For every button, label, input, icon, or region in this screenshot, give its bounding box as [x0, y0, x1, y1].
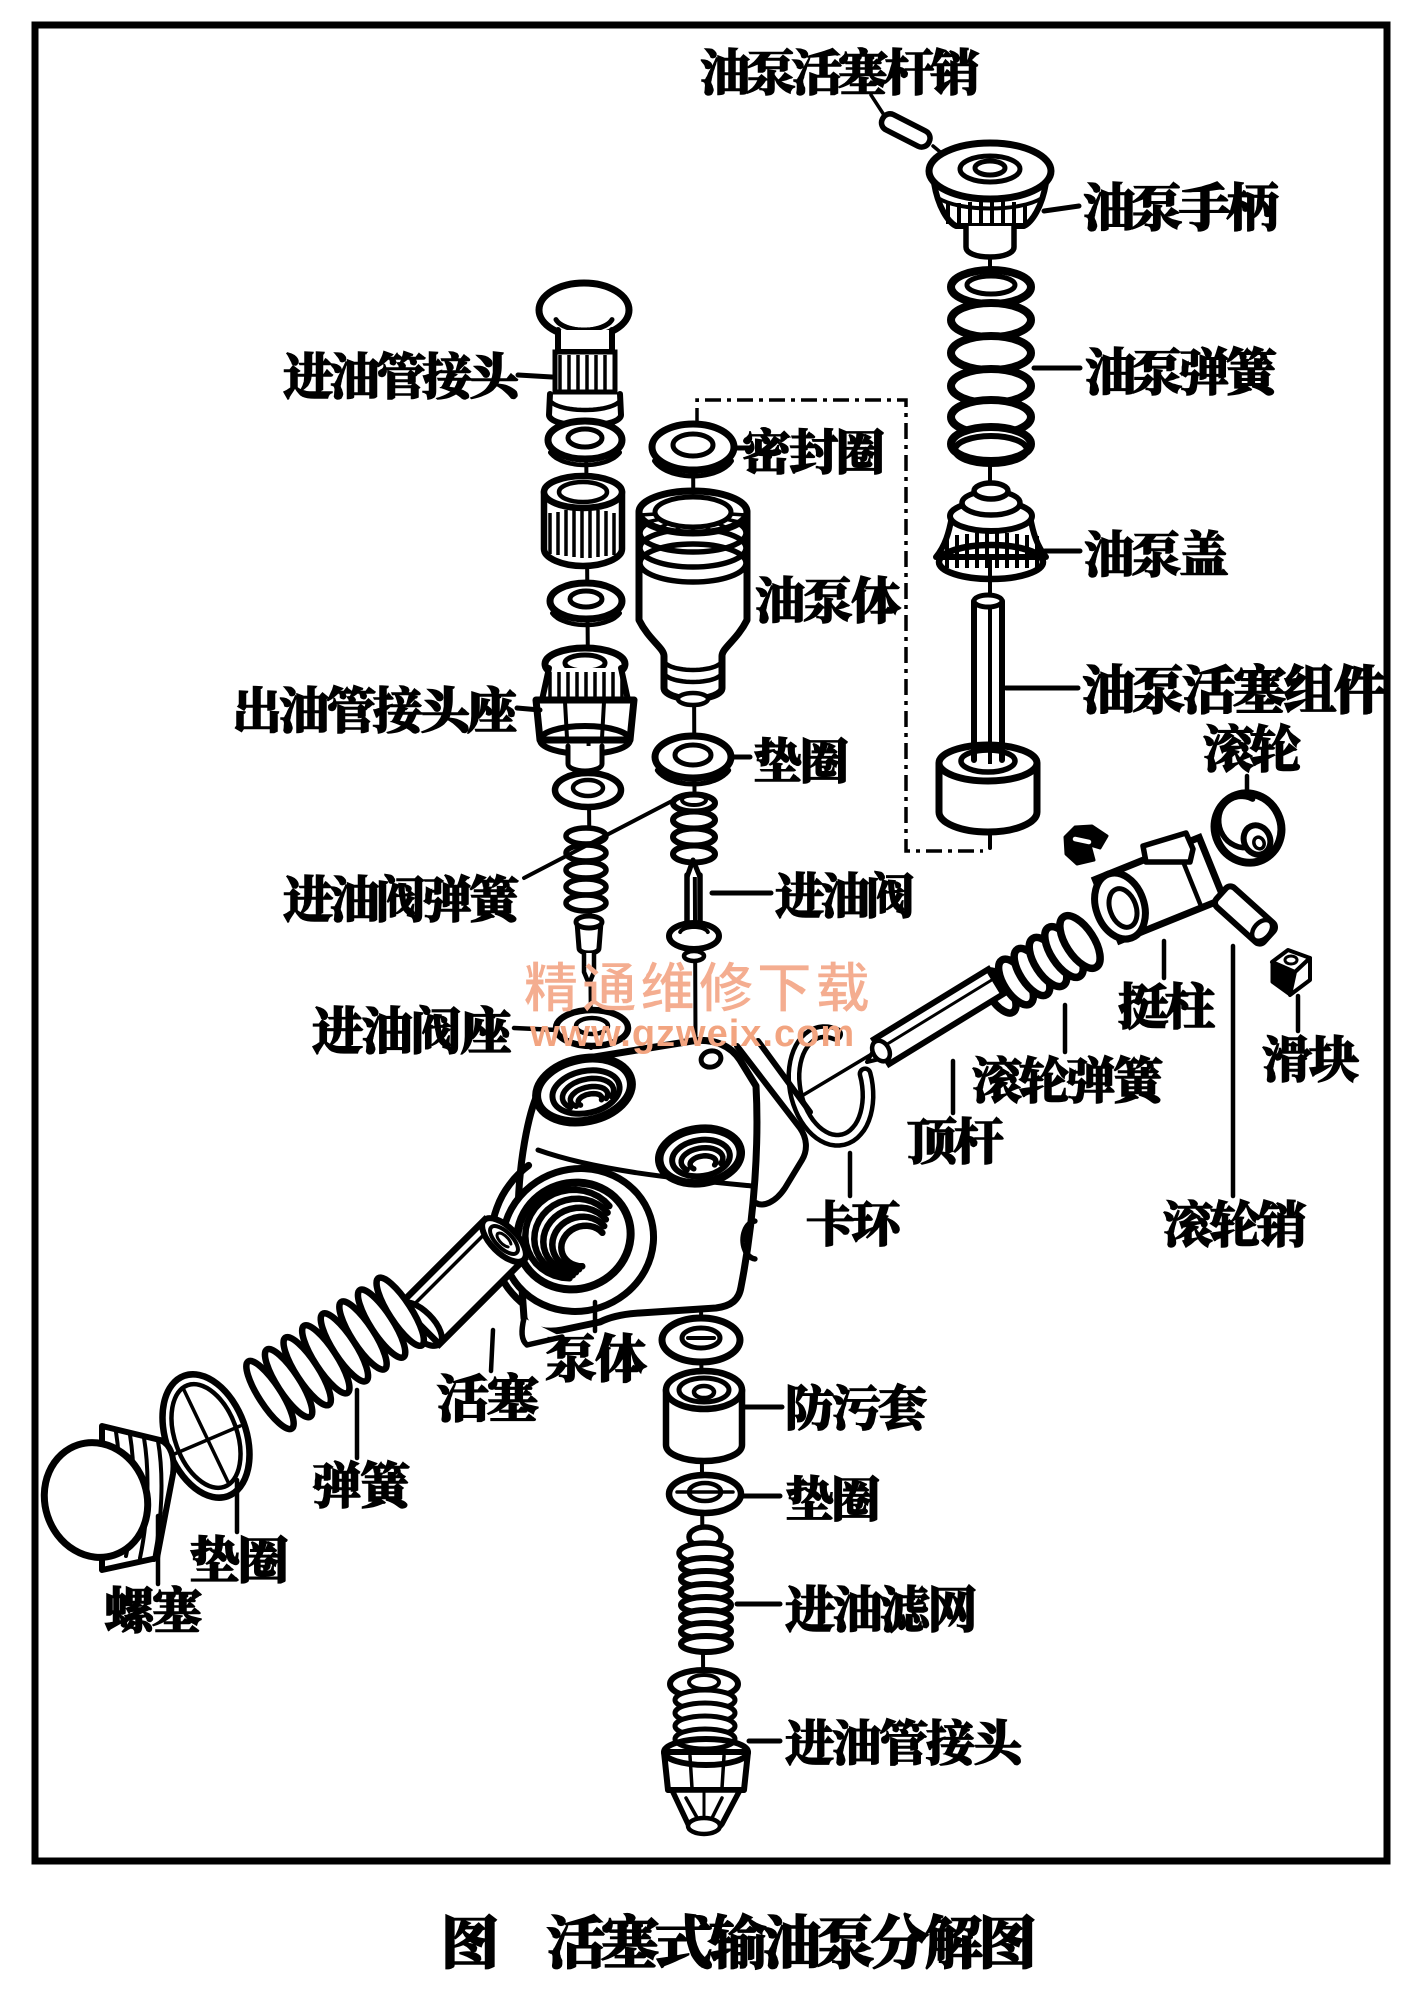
svg-text:www.gzweix.com: www.gzweix.com: [529, 1013, 855, 1055]
